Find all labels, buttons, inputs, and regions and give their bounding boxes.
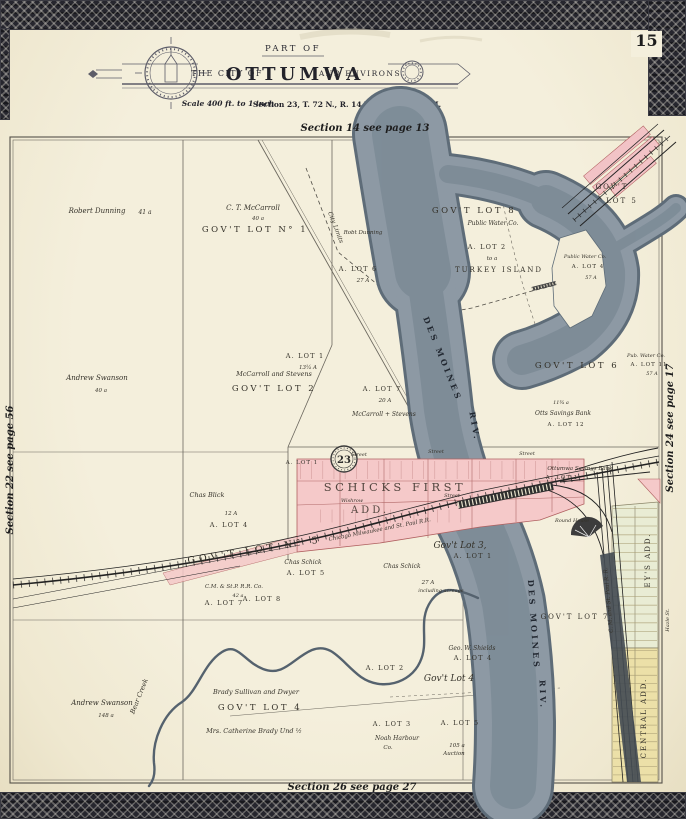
label-owner: Andrew Swanson xyxy=(65,374,128,382)
label-govt-lot-7: GOV'T LOT 7 xyxy=(541,613,610,621)
label-owner: Andrew Swanson xyxy=(70,699,133,707)
label-govt-lot-5: LOT 5 xyxy=(606,197,638,205)
label-street: Street xyxy=(428,449,445,455)
flourish-diamond xyxy=(88,70,98,78)
label-owner: McCarroll and Stevens xyxy=(235,370,312,378)
label-acreage: 20 A xyxy=(378,398,392,404)
label-govt-lot-3: Gov't Lot 3, xyxy=(433,541,486,551)
label-owner: C. T. McCarroll xyxy=(226,204,280,212)
label-lot: A. LOT 7 xyxy=(362,385,402,393)
label-owner: Robt Dunning xyxy=(343,230,383,236)
label-owner: Robert Dunning xyxy=(68,207,126,215)
label-acreage: 11¾ a xyxy=(553,399,569,406)
label-acreage: 40 a xyxy=(94,388,107,394)
label-lot: A. LOT 7 xyxy=(204,599,244,607)
label-acreage: 27 A xyxy=(421,580,435,586)
label-street: Wishrow xyxy=(341,498,364,504)
label-owner: Public Water Co. xyxy=(467,220,519,227)
label-owner: Noah Harbour xyxy=(374,735,420,742)
label-street: Street xyxy=(519,451,536,457)
section-23-stamp: 23 xyxy=(331,446,357,472)
label-owner: Chas Schick xyxy=(284,559,322,566)
label-lot: A. LOT 4 xyxy=(453,654,493,662)
label-note: including acreage xyxy=(418,588,464,594)
label-street: Street xyxy=(351,452,368,458)
bear-creek-stream xyxy=(149,590,478,786)
stamp-number: 23 xyxy=(337,455,351,466)
label-owner: Chas Schick xyxy=(383,563,421,570)
label-acreage: 57 A xyxy=(646,371,658,377)
label-govt-lot-2: GOV'T LOT 2 xyxy=(232,384,316,394)
label-acreage: 148 a xyxy=(98,713,114,719)
label-bear-creek: Bear Creek xyxy=(128,677,150,716)
label-owner: Brady Sullivan and Dwyer xyxy=(212,688,300,696)
label-railroad-owner: C.M. & St.P. R.R. Co. xyxy=(205,584,263,590)
label-owner: McCarroll + Stevens xyxy=(351,411,416,418)
label-lot: A. LOT 4 xyxy=(571,264,605,270)
pink-triangle-lot xyxy=(638,479,660,503)
label-des-moines-river: RIV. xyxy=(537,680,548,710)
label-acreage: 57 A xyxy=(585,275,597,281)
label-note: to a xyxy=(487,256,498,262)
label-govt-lot-8: GOV'T LOT 8 xyxy=(432,206,516,216)
label-acreage: 40 a xyxy=(251,216,264,222)
label-acreage: 105 a xyxy=(449,743,465,749)
edge-label-bottom: Section 26 see page 27 xyxy=(288,782,417,793)
label-govt-lot-4: Gov't Lot 4 xyxy=(424,674,475,684)
label-lot: A. LOT 1 xyxy=(453,552,493,560)
page-number-box: 15 xyxy=(631,31,662,57)
label-street: Hazle St. xyxy=(665,608,671,633)
label-lot: A. LOT 8 xyxy=(242,595,282,603)
label-lot: A. LOT 3 xyxy=(372,720,412,728)
title-part-of: PART OF xyxy=(265,44,321,54)
label-owner: Otts Savings Bank xyxy=(535,410,591,417)
label-eys-add: EY'S ADD. xyxy=(644,533,652,588)
title-and-environs: AND ENVIRONS xyxy=(318,69,401,78)
label-acreage: 12 A xyxy=(225,511,238,517)
label-owner: Public Water Co. xyxy=(563,254,607,260)
label-turkey-island: TURKEY ISLAND xyxy=(455,266,543,274)
label-owner: Ottumwa Savings Bank xyxy=(547,466,613,472)
plat-map: PART OF THE CITY OF OTTUMWA AND ENVIRONS… xyxy=(0,0,686,819)
label-govt-lot-6: GOV'T LOT 6 xyxy=(535,361,619,371)
label-street: Street xyxy=(444,493,461,499)
label-central-add: CENTRAL ADD. xyxy=(640,678,648,759)
label-govt-lot-5: GOV'T xyxy=(596,183,629,191)
label-owner: Geo. W. Shields xyxy=(449,645,496,652)
atlas-page: 15 xyxy=(0,0,686,819)
edge-label-left: Section 22 see page 56 xyxy=(5,405,16,534)
label-govt-lot-1: GOV'T LOT N° 1 xyxy=(202,225,308,235)
label-govt-lot-4: GOV'T LOT 4 xyxy=(218,703,302,713)
label-acreage: 27 A xyxy=(356,278,370,284)
edge-label-top: Section 14 see page 13 xyxy=(301,123,430,134)
label-note: Auction xyxy=(442,751,465,757)
label-schicks-first-add: ADD. xyxy=(350,505,389,516)
label-owner: Pub. Water Co. xyxy=(626,353,665,359)
page-number: 15 xyxy=(635,31,657,50)
label-owner: Chas Blick xyxy=(190,491,225,499)
edge-label-right: Section 24 see page 17 xyxy=(665,363,676,492)
label-round-house: Round House xyxy=(554,518,589,524)
label-owner: Co. xyxy=(383,745,392,751)
label-lot: A. LOT 12 xyxy=(546,422,584,428)
label-lot: A. LOT 6 xyxy=(338,265,378,273)
label-lot: A. LOT 1 xyxy=(545,475,579,481)
label-schicks-first-add: SCHICKS FIRST xyxy=(324,480,466,494)
label-owner: Mrs. Catherine Brady Und ½ xyxy=(205,727,302,735)
label-lot: A. LOT 1 xyxy=(285,352,325,360)
label-lot: A. LOT 11 xyxy=(629,362,667,368)
label-acreage: 41 a xyxy=(137,209,152,216)
label-lot: A. LOT 4 xyxy=(209,521,249,529)
label-lot: A. LOT 5 xyxy=(440,719,480,727)
print-bleed xyxy=(300,31,482,41)
label-lot: A. LOT 1 xyxy=(285,460,319,466)
label-lot: A. LOT 5 xyxy=(286,569,326,577)
label-lot: A. LOT 2 xyxy=(467,243,507,251)
label-lot: A. LOT 2 xyxy=(365,664,405,672)
